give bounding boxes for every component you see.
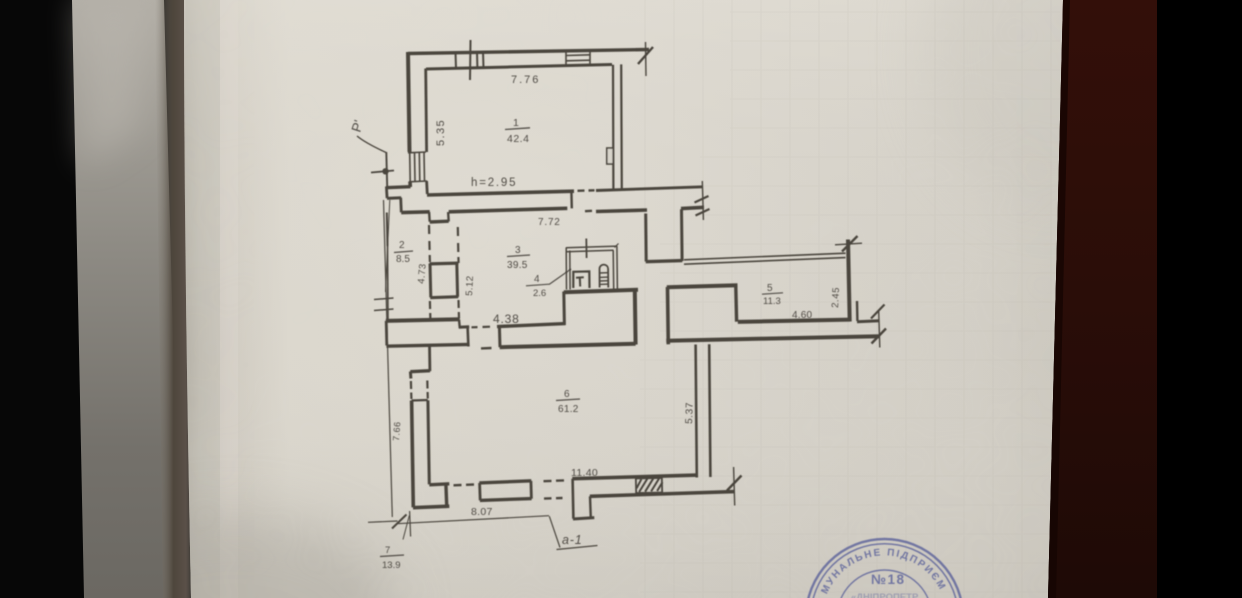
svg-text:13.9: 13.9 [382,560,401,571]
svg-text:7: 7 [385,545,390,556]
svg-text:2.6: 2.6 [533,288,546,299]
svg-text:61.2: 61.2 [558,404,579,415]
svg-text:5.12: 5.12 [464,275,476,296]
svg-text:5.35: 5.35 [435,119,447,146]
svg-text:8.5: 8.5 [396,254,410,265]
svg-text:4.73: 4.73 [416,263,429,284]
svg-text:1: 1 [513,117,519,129]
svg-text:39.5: 39.5 [507,260,528,271]
svg-text:a-1: a-1 [562,533,582,547]
svg-text:4.60: 4.60 [792,310,813,321]
svg-text:3: 3 [515,245,521,256]
svg-text:6: 6 [564,389,570,400]
svg-text:5.37: 5.37 [684,402,696,424]
svg-text:7.72: 7.72 [538,217,561,228]
svg-text:42.4: 42.4 [507,133,529,145]
svg-text:h=2.95: h=2.95 [471,177,517,189]
svg-text:4: 4 [534,274,540,285]
svg-text:№18: №18 [871,572,906,587]
svg-text:«ДНІПРОПЕТР: «ДНІПРОПЕТР [851,592,919,598]
svg-text:8.07: 8.07 [471,506,493,518]
svg-text:2: 2 [399,240,405,251]
svg-text:11.3: 11.3 [763,296,781,307]
svg-text:2.45: 2.45 [830,287,842,308]
svg-text:5: 5 [767,283,773,294]
svg-text:7.66: 7.66 [391,421,402,441]
svg-text:7.76: 7.76 [511,74,540,86]
svg-text:4.38: 4.38 [493,312,520,326]
svg-text:11.40: 11.40 [571,467,598,479]
